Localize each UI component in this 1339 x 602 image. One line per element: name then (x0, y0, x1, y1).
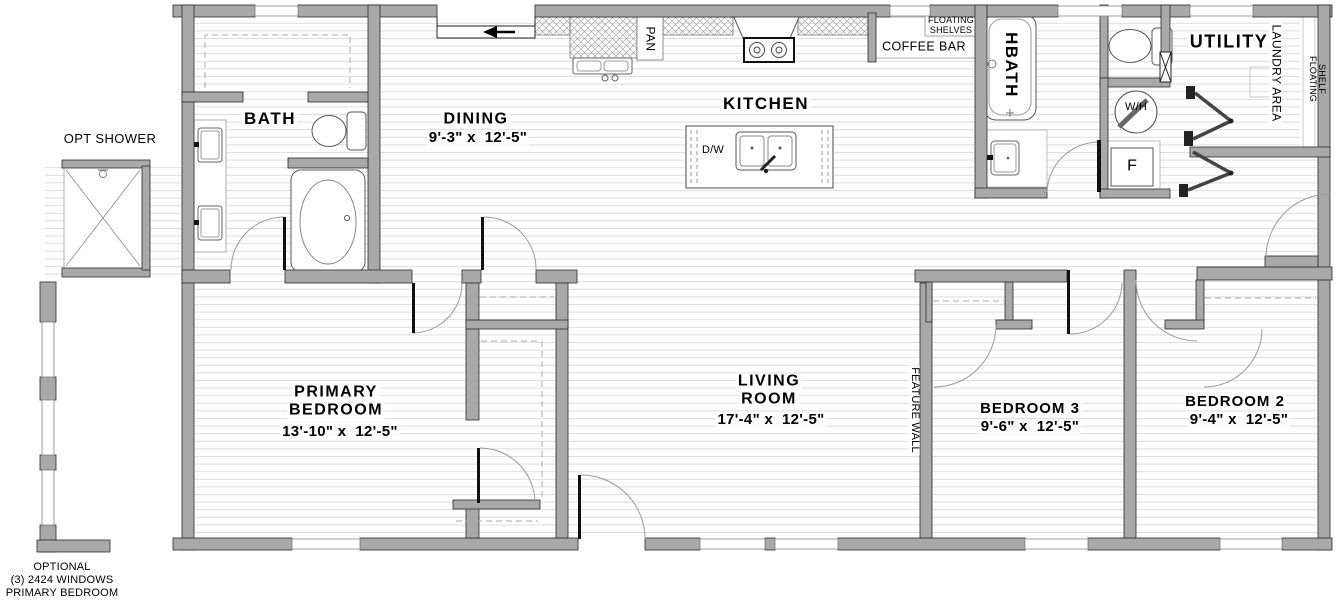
opt-shower-detail (62, 160, 150, 277)
hbath-label: HBATH (1002, 30, 1020, 100)
optional-note-line2: (3) 2424 WINDOWS (9, 575, 116, 587)
water-heater-label: W/H (1123, 102, 1149, 114)
optional-note-line1: OPTIONAL (31, 562, 92, 574)
primary-bedroom-label-line1: PRIMARY (292, 385, 380, 402)
bedroom3-dims: 9'-6" x 12'-5" (979, 419, 1081, 435)
living-room-dims: 17'-4" x 12'-5" (715, 412, 826, 428)
bath-vanity (192, 120, 226, 252)
hbath-sink (985, 130, 1047, 187)
floating-shelves-label-line2: SHELVES (928, 25, 974, 35)
range-and-hood (733, 15, 800, 62)
opt-shower-label: OPT SHOWER (62, 132, 159, 146)
coffee-bar-label: COFFEE BAR (880, 40, 968, 53)
bedroom2-dims: 9'-4" x 12'-5" (1188, 412, 1290, 428)
floating-shelves-label-line1: FLOATING (926, 15, 976, 25)
kitchen-island (686, 126, 833, 188)
primary-bedroom-label-line2: BEDROOM (287, 403, 385, 420)
feature-wall-label: FEATURE WALL (908, 365, 920, 455)
optional-windows-wall (37, 282, 110, 552)
floor-plan-drawing (0, 0, 1339, 602)
dining-dims: 9'-3" x 12'-5" (427, 130, 529, 146)
kitchen-label: KITCHEN (721, 95, 811, 113)
laundry-area-label: LAUNDRY AREA (1270, 22, 1283, 123)
furnace-label: F (1125, 159, 1139, 176)
floor-plan: OPT SHOWER BATH DINING 9'-3" x 12'-5" KI… (0, 0, 1339, 602)
bedroom2-label: BEDROOM 2 (1183, 394, 1287, 410)
bedroom3-label: BEDROOM 3 (978, 401, 1082, 417)
dining-label: DINING (442, 112, 511, 129)
utility-label: UTILITY (1188, 33, 1271, 52)
bath-tub (291, 170, 365, 272)
dishwasher-label: D/W (700, 145, 726, 157)
pantry-label: PAN (644, 25, 657, 54)
optional-note-line3: PRIMARY BEDROOM (4, 588, 121, 600)
living-room-label-line1: LIVING (736, 374, 802, 391)
primary-bedroom-dims: 13'-10" x 12'-5" (280, 424, 400, 440)
living-room-label-line2: ROOM (739, 392, 799, 409)
bath-label: BATH (242, 110, 298, 128)
floating-shelf-label-line2: SHELF (1317, 62, 1327, 96)
